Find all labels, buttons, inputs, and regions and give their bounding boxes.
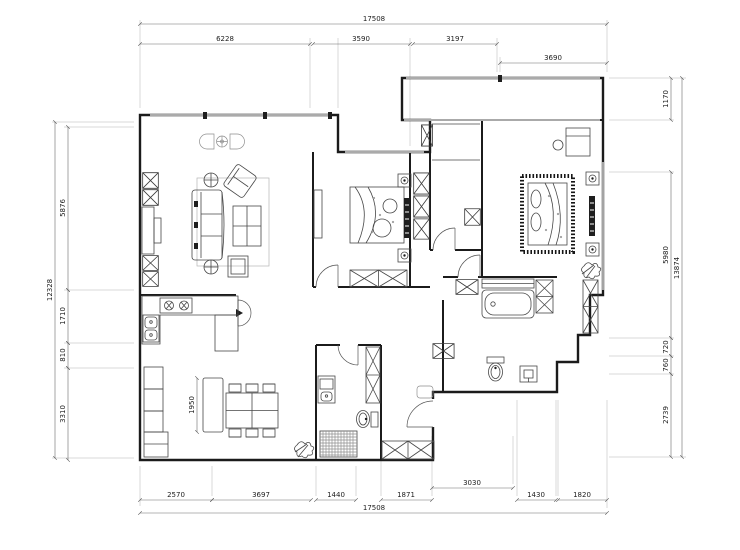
dim-right-total: 13874	[673, 256, 681, 279]
toilet-icon	[357, 411, 379, 428]
window-mullion	[328, 112, 332, 119]
dim-right: 1170 5980 720 760 2739 13874	[662, 78, 682, 457]
dim-bottom-seg1: 2570	[167, 491, 185, 499]
bedroom2-door	[316, 265, 338, 287]
wardrobe	[414, 219, 430, 239]
dim-right-seg5: 2739	[662, 406, 670, 424]
entry-door	[407, 401, 433, 427]
washbasin-icon	[318, 376, 335, 403]
dim-top: 17508 6228 3590 3197 3690	[140, 15, 607, 63]
nightstand	[586, 243, 599, 256]
toilet-icon	[487, 357, 504, 381]
dim-bottom-seg3: 1440	[327, 491, 345, 499]
headboard	[404, 198, 410, 238]
wardrobe	[414, 173, 430, 194]
wardrobe	[414, 196, 430, 217]
plant-icon	[582, 263, 601, 279]
dim-right-seg2: 5980	[662, 246, 670, 264]
bed	[522, 176, 573, 252]
side-table	[228, 256, 248, 277]
nightstand	[586, 172, 599, 185]
armchair	[223, 163, 258, 198]
window-mullion	[263, 112, 267, 119]
island-dimension: 1950	[188, 378, 197, 432]
dim-left-seg3: 810	[59, 348, 67, 361]
entry-hall	[382, 386, 434, 459]
dim-bottom-seg4: 1871	[397, 491, 415, 499]
dim-left-seg2: 1710	[59, 307, 67, 325]
dim-bottom-total: 17508	[363, 504, 385, 512]
island-counter	[203, 378, 223, 432]
vanity	[520, 366, 537, 382]
tub-shelf	[482, 279, 534, 288]
floor-lamp-icon	[204, 260, 218, 274]
window-mullion	[203, 112, 207, 119]
tv-cabinet	[314, 190, 322, 238]
column-cabinet	[143, 173, 159, 189]
column-cabinet	[143, 272, 159, 287]
dim-bottom-seg5: 3030	[463, 479, 481, 487]
dim-left: 12328 5876 1710 810 3310	[46, 122, 68, 460]
bed	[350, 187, 404, 243]
dim-left-seg4: 3310	[59, 405, 67, 423]
master-bathroom	[456, 279, 553, 382]
column-cabinet	[143, 190, 159, 206]
kitchen	[142, 296, 238, 351]
dim-top-seg3: 3197	[446, 35, 464, 43]
kitchen-counter-return	[215, 315, 238, 351]
dim-right-seg3: 720	[662, 340, 670, 353]
dim-right-seg1: 1170	[662, 90, 670, 108]
headboard	[589, 196, 595, 236]
bathroom2-door	[338, 345, 358, 365]
closet-cabinet	[465, 209, 481, 226]
kitchen-counter	[142, 296, 238, 344]
tv-cabinet	[142, 207, 161, 254]
bath-cabinet-right	[536, 280, 553, 313]
master-bath-door	[458, 255, 480, 277]
dim-top-seg1: 6228	[216, 35, 234, 43]
ceiling-light-icon	[200, 134, 245, 149]
dim-top-seg2: 3590	[352, 35, 370, 43]
closet-shelf	[432, 124, 480, 160]
closet-door	[433, 228, 455, 250]
floor-plan-canvas: 17508 6228 3590 3197 3690 3030 2570 3697…	[0, 0, 740, 550]
shoe-bench	[382, 441, 434, 459]
plant-icon	[295, 442, 314, 458]
coffee-table	[233, 206, 261, 246]
bathtub-icon	[482, 290, 534, 318]
dim-bottom-seg6: 1430	[527, 491, 545, 499]
bathroom-2	[318, 347, 380, 457]
dining-room: 1950	[144, 367, 314, 458]
shower-tray-icon	[320, 431, 357, 457]
floor-plan-page: 17508 6228 3590 3197 3690 3030 2570 3697…	[0, 0, 740, 550]
floor-lamp-icon	[204, 173, 218, 187]
dining-table	[226, 393, 278, 428]
dim-top-total: 17508	[363, 15, 385, 23]
dim-right-seg4: 760	[662, 358, 670, 371]
bed-bench	[350, 270, 407, 287]
bedroom-2	[314, 173, 429, 287]
dim-bottom-seg2: 3697	[252, 491, 270, 499]
door-mat	[417, 386, 433, 398]
dim-left-total: 12328	[46, 279, 54, 301]
window-mullion	[498, 75, 502, 82]
column-cabinet	[143, 256, 159, 271]
dim-left-seg1: 5876	[59, 199, 67, 217]
stove-icon	[160, 298, 192, 313]
dim-top-balcony: 3690	[544, 54, 562, 62]
living-room	[142, 134, 269, 286]
tall-cabinet	[366, 347, 380, 403]
sideboard-cabinets	[144, 367, 168, 457]
dim-bottom: 3030 2570 3697 1440 1871 1430 1820 17508	[140, 479, 607, 513]
interior-walls	[140, 120, 603, 460]
dim-island: 1950	[188, 396, 196, 414]
dresser	[553, 128, 590, 156]
dim-bottom-seg7: 1820	[573, 491, 591, 499]
sink-icon	[143, 315, 159, 342]
bath-cabinet	[456, 280, 478, 295]
